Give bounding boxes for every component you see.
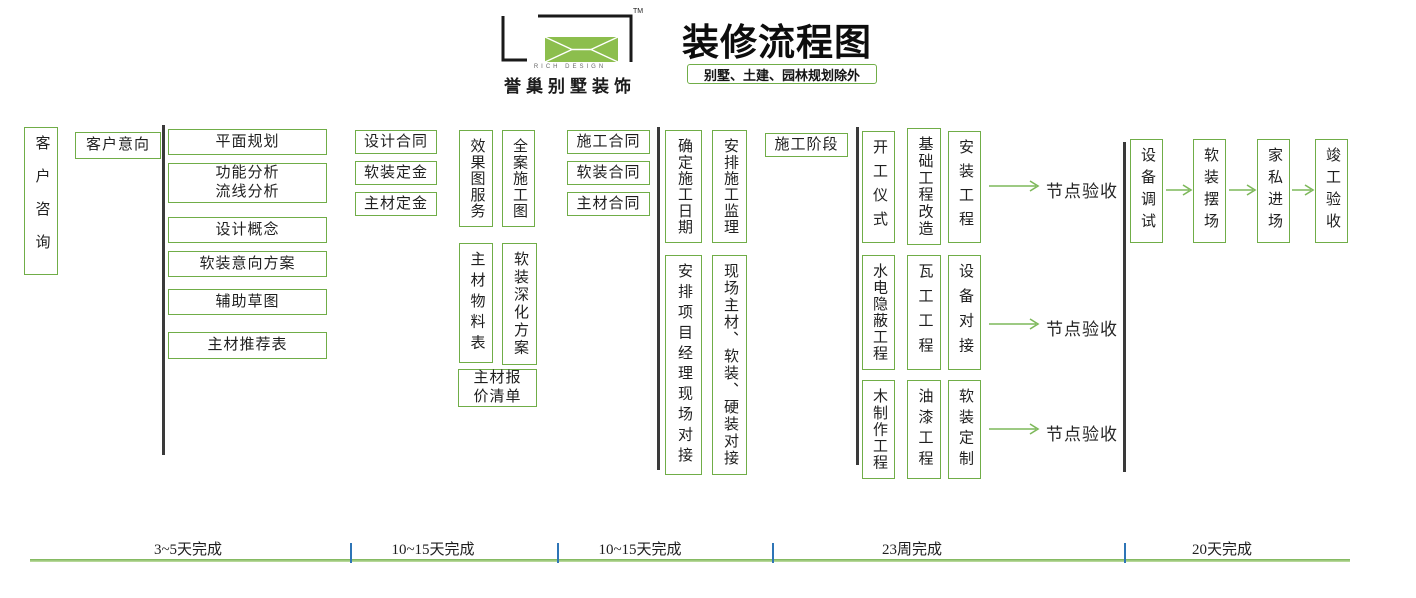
company-logo: TM RICH DESIGN 誉巢别墅装饰 <box>495 8 645 94</box>
timeline-segment-label: 3~5天完成 <box>154 538 222 559</box>
timeline-tick <box>350 543 352 563</box>
decoration-flowchart: TM RICH DESIGN 誉巢别墅装饰 装修流程图 别墅、土建、园林规划除外… <box>0 0 1416 598</box>
flow-arrow <box>989 181 1038 191</box>
flow-arrow <box>989 319 1038 329</box>
flow-node-completion-acceptance: 竣工验收 <box>1315 139 1348 243</box>
flow-arrow <box>989 424 1038 434</box>
flow-node-full-construction-drawing: 全案施工图 <box>502 130 535 227</box>
timeline-segment-label: 20天完成 <box>1192 538 1252 559</box>
flow-arrow <box>1166 185 1191 195</box>
flow-node-main-material-quote: 主材报 价清单 <box>458 369 537 407</box>
flow-node-equipment-docking: 设备对接 <box>948 255 981 370</box>
flow-node-design-concept: 设计概念 <box>168 217 327 243</box>
flow-node-site-docking: 现场主材、软装、硬装对接 <box>712 255 747 475</box>
flow-node-construction-phase: 施工阶段 <box>765 133 848 157</box>
flow-node-customer-consult: 客户咨询 <box>24 127 58 275</box>
flow-arrow <box>1292 185 1313 195</box>
flow-node-soft-custom: 软装定制 <box>948 380 981 479</box>
timeline-segment-label: 10~15天完成 <box>598 538 681 559</box>
flow-node-main-material-deposit: 主材定金 <box>355 192 437 216</box>
flow-separator <box>657 127 660 470</box>
flow-node-soft-staging: 软装摆场 <box>1193 139 1226 243</box>
flow-node-soft-deepen-plan: 软装深化方案 <box>502 243 537 365</box>
flow-node-function-flow-analysis: 功能分析 流线分析 <box>168 163 327 203</box>
flow-node-furniture-entry: 家私进场 <box>1257 139 1290 243</box>
flow-node-aux-sketch: 辅助草图 <box>168 289 327 315</box>
flow-node-arrange-pm-site: 安排项目经理现场对接 <box>665 255 702 475</box>
brand-name-en: RICH DESIGN <box>495 64 645 70</box>
page-subtitle: 别墅、土建、园林规划除外 <box>687 64 877 84</box>
flow-node-main-material-list: 主材物料表 <box>459 243 493 363</box>
flow-node-soft-deposit: 软装定金 <box>355 161 437 185</box>
flow-node-soft-contract: 软装合同 <box>567 161 650 185</box>
flow-separator <box>856 127 859 465</box>
flow-node-tiling-work: 瓦工工程 <box>907 255 941 370</box>
flow-node-painting-work: 油漆工程 <box>907 380 941 479</box>
timeline-segment-label: 23周完成 <box>882 538 942 559</box>
flow-node-basic-engineering-renovation: 基础工程改造 <box>907 128 941 245</box>
timeline-segment-label: 10~15天完成 <box>391 538 474 559</box>
flow-node-opening-ceremony: 开工仪式 <box>862 131 895 243</box>
checkpoint-label: 节点验收 <box>1046 420 1118 445</box>
flow-separator <box>1123 142 1126 472</box>
timeline-tick <box>557 543 559 563</box>
trademark-symbol: TM <box>633 8 643 15</box>
flow-node-installation-engineering: 安装工程 <box>948 131 981 243</box>
flow-node-render-service: 效果图服务 <box>459 130 493 227</box>
flow-node-carpentry-work: 木制作工程 <box>862 380 895 479</box>
checkpoint-label: 节点验收 <box>1046 177 1118 202</box>
timeline-line <box>30 559 1350 562</box>
timeline-tick <box>1124 543 1126 563</box>
flow-node-arrange-supervision: 安排施工监理 <box>712 130 747 243</box>
flow-node-equipment-debug: 设备调试 <box>1130 139 1163 243</box>
flow-separator <box>162 125 165 455</box>
timeline-tick <box>772 543 774 563</box>
page-title: 装修流程图 <box>682 12 872 66</box>
flow-arrow <box>1229 185 1255 195</box>
flow-node-design-contract: 设计合同 <box>355 130 437 154</box>
flow-node-main-material-contract: 主材合同 <box>567 192 650 216</box>
flow-node-confirm-construction-date: 确定施工日期 <box>665 130 702 243</box>
brand-name-cn: 誉巢别墅装饰 <box>489 72 651 97</box>
checkpoint-label: 节点验收 <box>1046 315 1118 340</box>
flow-node-soft-intent-plan: 软装意向方案 <box>168 251 327 277</box>
flow-node-plumbing-concealed-work: 水电隐蔽工程 <box>862 255 895 370</box>
flow-node-main-material-recommend: 主材推荐表 <box>168 332 327 359</box>
flow-node-construction-contract: 施工合同 <box>567 130 650 154</box>
flow-node-customer-intent: 客户意向 <box>75 132 161 159</box>
flow-node-plane-planning: 平面规划 <box>168 129 327 155</box>
